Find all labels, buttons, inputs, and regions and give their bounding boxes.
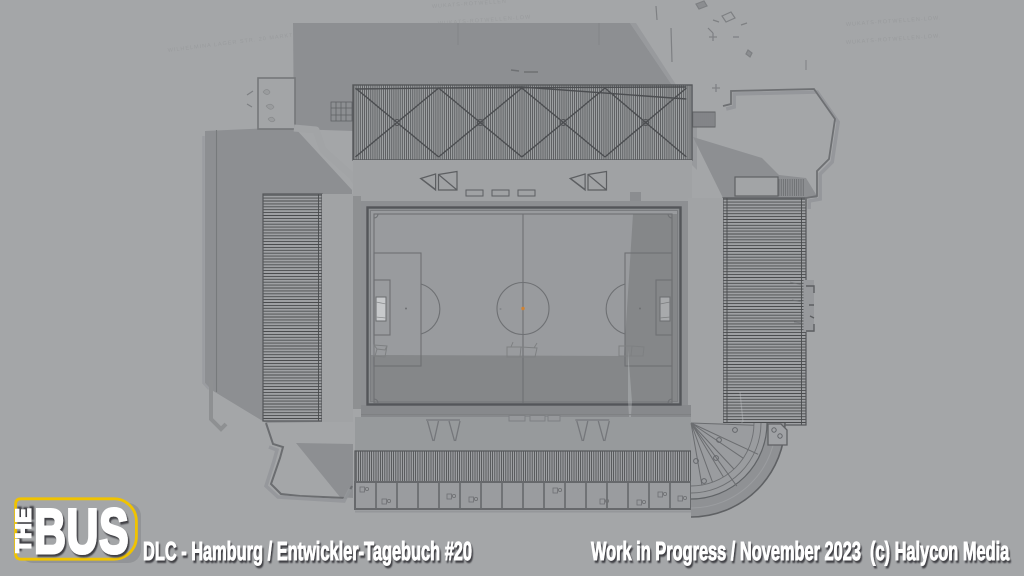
svg-text:THE: THE: [13, 508, 36, 553]
svg-text:DLC - Hamburg / Entwickler-Tag: DLC - Hamburg / Entwickler-Tagebuch #20: [143, 536, 472, 566]
svg-text:Work in Progress / November 20: Work in Progress / November 2023 (c) Hal…: [591, 536, 1010, 566]
svg-text:BUS: BUS: [34, 496, 129, 567]
